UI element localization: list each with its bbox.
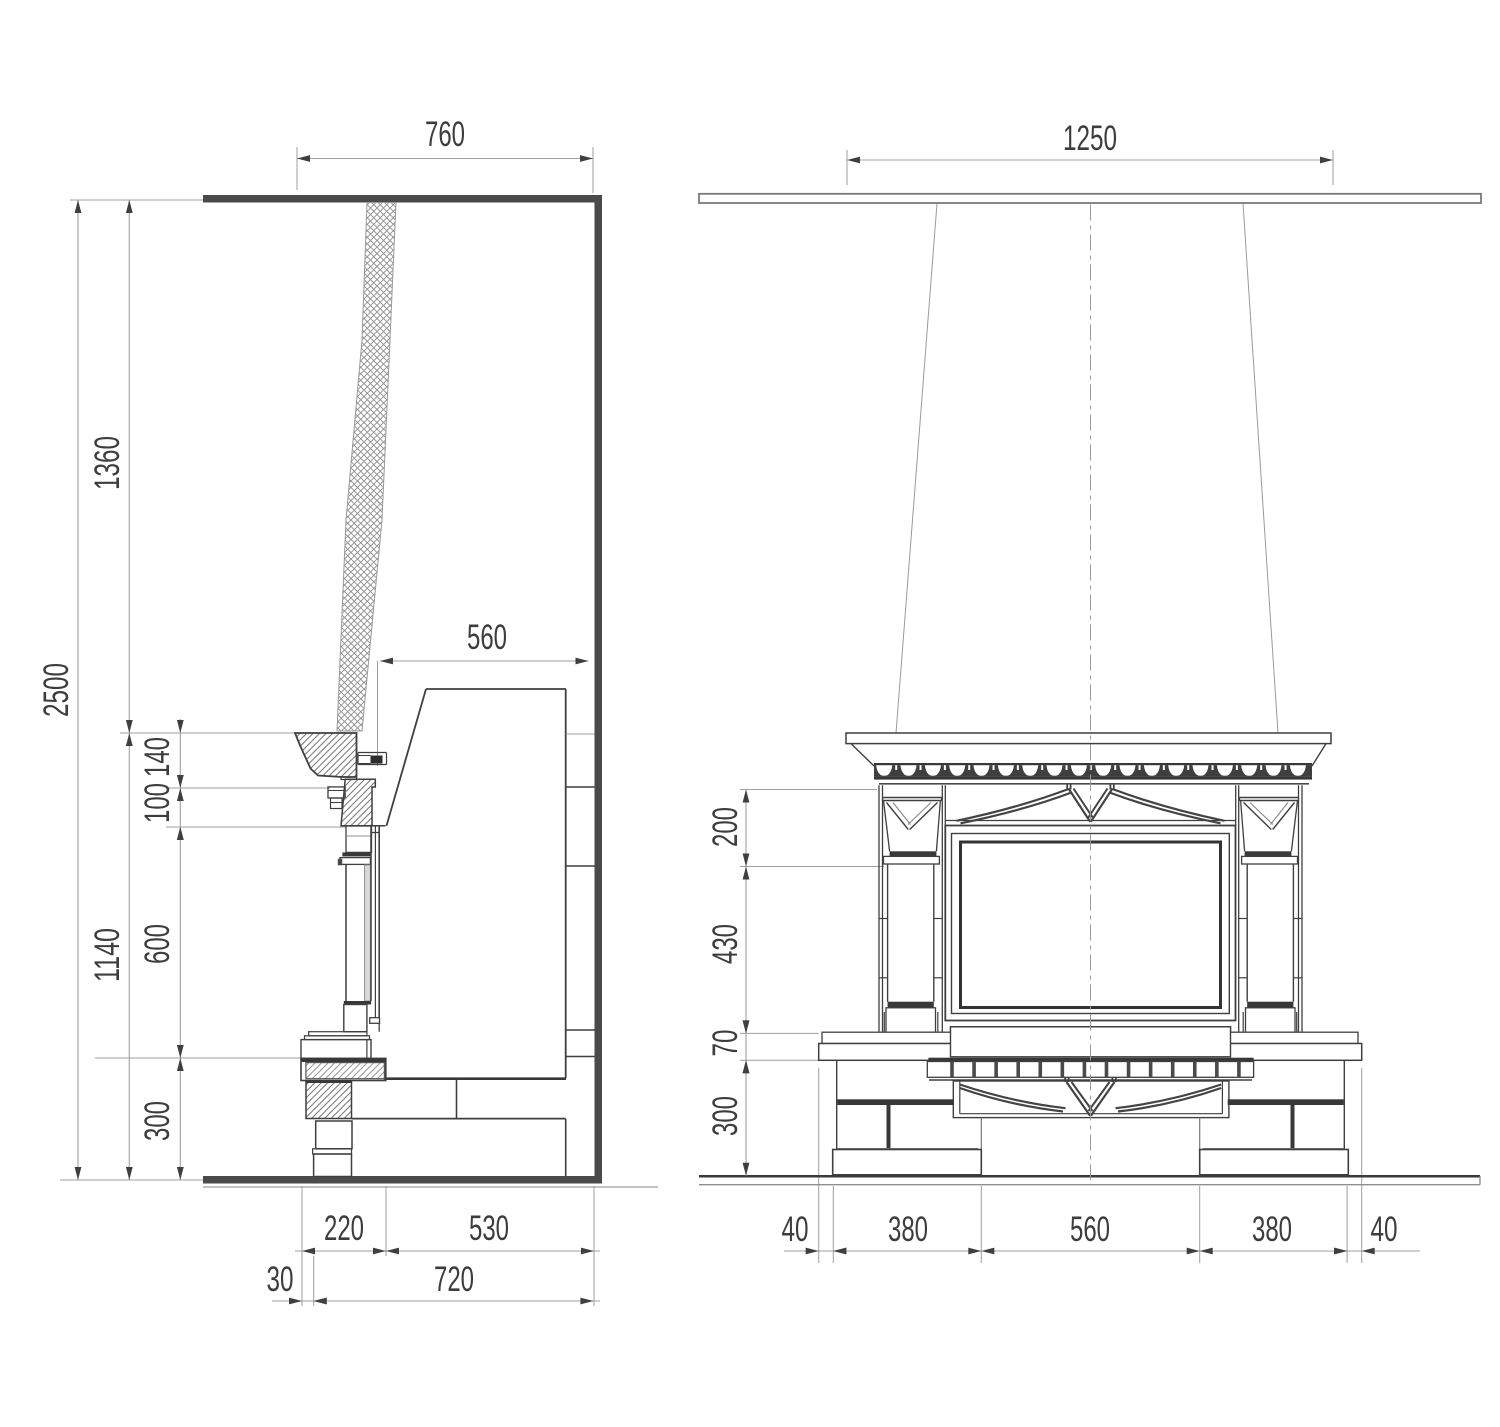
- svg-text:380: 380: [888, 1210, 928, 1249]
- svg-text:380: 380: [1252, 1210, 1292, 1249]
- svg-text:2500: 2500: [37, 663, 76, 717]
- svg-text:1250: 1250: [1063, 119, 1117, 158]
- svg-text:300: 300: [706, 1096, 745, 1136]
- svg-text:70: 70: [706, 1030, 745, 1057]
- svg-text:40: 40: [782, 1210, 809, 1249]
- svg-text:430: 430: [706, 924, 745, 964]
- svg-text:1140: 1140: [88, 928, 127, 982]
- svg-text:720: 720: [434, 1260, 474, 1299]
- svg-text:220: 220: [324, 1209, 364, 1248]
- svg-text:1360: 1360: [88, 436, 127, 490]
- svg-text:40: 40: [1371, 1210, 1398, 1249]
- svg-text:300: 300: [138, 1101, 177, 1141]
- svg-text:560: 560: [467, 618, 507, 657]
- svg-text:530: 530: [469, 1209, 509, 1248]
- svg-text:30: 30: [267, 1260, 294, 1299]
- svg-text:140: 140: [138, 737, 177, 777]
- svg-text:600: 600: [138, 924, 177, 964]
- svg-text:560: 560: [1070, 1210, 1110, 1249]
- svg-text:760: 760: [425, 115, 465, 154]
- svg-text:200: 200: [706, 807, 745, 847]
- svg-text:100: 100: [138, 783, 177, 823]
